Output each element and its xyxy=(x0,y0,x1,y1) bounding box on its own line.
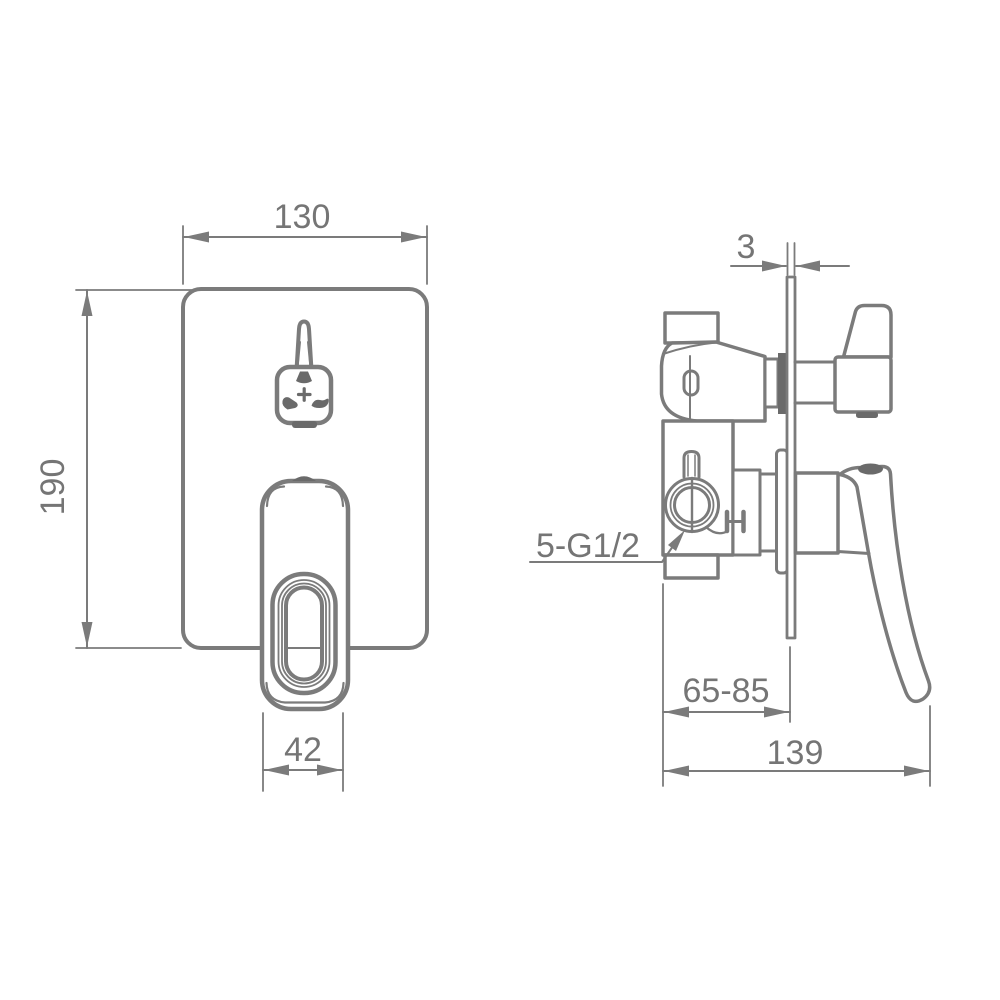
connection-label: 5-G1/2 xyxy=(536,527,640,565)
top-inlet-tube xyxy=(684,452,699,478)
dim-label-total-depth: 139 xyxy=(767,734,824,772)
knob-bottom-tab-side xyxy=(856,412,878,418)
knob-body-side xyxy=(835,357,891,412)
dim-label-front-height: 190 xyxy=(34,459,72,516)
bottom-port-block xyxy=(665,555,718,578)
side-view: 3 5-G1/2 65- xyxy=(530,228,930,786)
mixer-valve-body xyxy=(663,421,788,578)
diverter-valve-body xyxy=(662,313,789,421)
arrowhead xyxy=(796,261,820,272)
dim-handle-width: 42 xyxy=(263,713,343,791)
diverter-spindle xyxy=(765,359,778,407)
upper-body xyxy=(662,342,766,421)
arrowhead xyxy=(82,291,93,316)
dim-plate-thickness: 3 xyxy=(731,228,849,275)
handle-base-side xyxy=(796,473,839,553)
arrowhead xyxy=(664,766,689,777)
front-view: 130 190 xyxy=(34,198,427,791)
lever-side xyxy=(840,467,930,702)
arrowhead xyxy=(762,261,786,272)
dim-label-front-width: 130 xyxy=(274,198,331,236)
knob-grip-side xyxy=(844,306,892,358)
dim-front-height: 190 xyxy=(34,290,197,648)
dim-front-width: 130 xyxy=(183,198,427,284)
dim-label-handle-width: 42 xyxy=(284,731,322,769)
technical-drawing-page: 130 190 xyxy=(0,0,1000,1000)
dim-label-depth-range: 65-85 xyxy=(683,672,770,710)
dim-label-plate-thickness: 3 xyxy=(737,228,756,266)
cartridge-housing xyxy=(733,470,760,555)
shower-valve-dimension-drawing: 130 190 xyxy=(0,0,1000,1000)
lever-cap xyxy=(858,464,883,475)
lever-handle-side xyxy=(796,464,930,702)
lever-handle-front xyxy=(262,476,348,709)
handle-ring-inner xyxy=(286,588,322,680)
cartridge-rings xyxy=(760,474,777,551)
arrowhead xyxy=(184,232,209,243)
diverter-knob-side xyxy=(795,306,891,419)
dim-total-depth: 139 xyxy=(663,706,930,786)
diverter-bottom-tab xyxy=(292,421,317,428)
arrowhead xyxy=(904,766,929,777)
arrowhead xyxy=(82,622,93,647)
arrowhead xyxy=(401,232,426,243)
top-port-block xyxy=(665,313,718,343)
wall-plate-side xyxy=(787,277,795,638)
